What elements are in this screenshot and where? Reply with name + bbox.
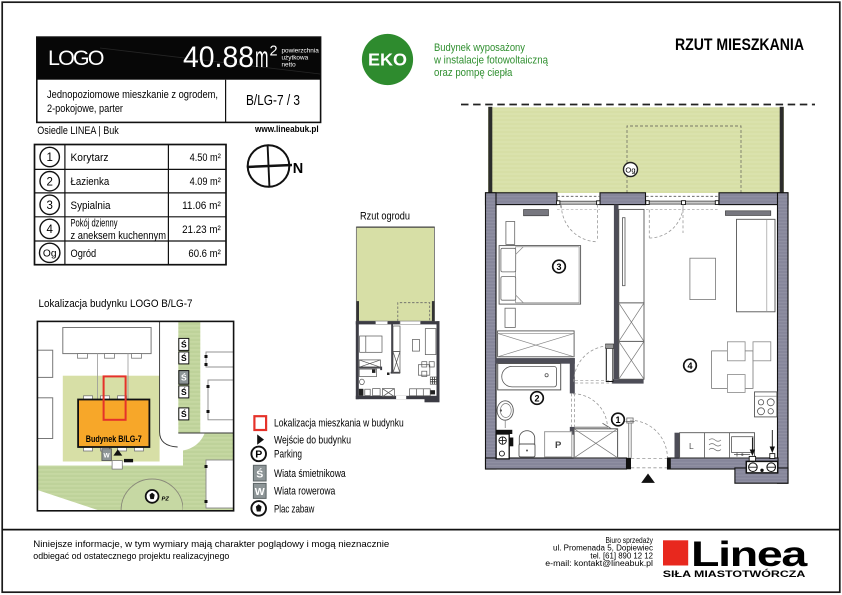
svg-text:11.06 m²: 11.06 m² [182,200,221,212]
svg-text:Lokalizacja budynku LOGO B/LG: Lokalizacja budynku LOGO B/LG-7 [39,298,193,310]
svg-text:powierzchnia: powierzchnia [282,48,320,55]
svg-text:Ś: Ś [181,352,187,363]
svg-text:Ogród: Ogród [71,248,97,260]
svg-text:40.88m2: 40.88m2 [183,41,278,74]
svg-text:Budynek B/LG-7: Budynek B/LG-7 [86,434,142,444]
svg-text:Plac zabaw: Plac zabaw [274,503,314,515]
svg-text:Budynek wyposażony: Budynek wyposażony [434,42,525,54]
svg-text:21.23 m²: 21.23 m² [182,224,221,236]
svg-text:z aneksem kuchennym: z aneksem kuchennym [71,230,167,242]
svg-text:2-pokojowe, parter: 2-pokojowe, parter [47,103,123,115]
svg-text:www.lineabuk.pl: www.lineabuk.pl [254,124,319,135]
svg-text:Niniejsze informacje, w tym wy: Niniejsze informacje, w tym wymiary mają… [33,538,389,549]
svg-text:60.6 m²: 60.6 m² [188,248,221,260]
svg-text:Lokalizacja mieszkania w budyn: Lokalizacja mieszkania w budynku [274,418,404,430]
svg-text:Og: Og [43,249,57,260]
svg-text:Ś: Ś [181,408,187,419]
svg-text:Ś: Ś [181,372,187,383]
svg-text:oraz pompę ciepła: oraz pompę ciepła [434,67,513,79]
svg-text:Ś: Ś [181,339,187,350]
svg-text:3: 3 [46,200,52,212]
svg-text:w instalacje fotowoltaiczną: w instalacje fotowoltaiczną [433,55,549,67]
svg-text:Sypialnia: Sypialnia [71,200,112,212]
svg-text:LOGO: LOGO [48,46,105,70]
svg-text:1: 1 [46,152,52,164]
svg-text:Parking: Parking [274,449,302,461]
svg-text:Ś: Ś [181,386,187,397]
svg-text:4: 4 [687,361,692,371]
svg-text:RZUT MIESZKANIA: RZUT MIESZKANIA [675,35,804,54]
svg-text:e-mail: kontakt@lineabuk.pl: e-mail: kontakt@lineabuk.pl [545,559,653,568]
svg-text:Wiata rowerowa: Wiata rowerowa [274,485,336,497]
svg-text:4.50 m²: 4.50 m² [190,152,221,164]
svg-text:odbiegać od ostatecznego proje: odbiegać od ostatecznego projektu realiz… [33,550,229,561]
svg-text:netto: netto [282,62,297,69]
svg-text:2: 2 [534,394,539,404]
svg-text:Łazienka: Łazienka [71,176,110,188]
svg-text:4.09 m²: 4.09 m² [190,176,221,188]
svg-text:Wiata śmietnikowa: Wiata śmietnikowa [274,468,346,480]
svg-text:Wejście do budynku: Wejście do budynku [274,434,351,446]
svg-text:Pokój dzienny: Pokój dzienny [71,217,118,229]
svg-text:1: 1 [615,415,620,425]
svg-text:Jednopoziomowe mieszkanie z og: Jednopoziomowe mieszkanie z ogrodem, [47,89,218,101]
svg-text:P: P [255,449,262,461]
svg-text:3: 3 [556,262,561,272]
svg-text:N: N [293,161,303,177]
svg-text:P: P [555,440,562,451]
svg-text:SIŁA MIASTOTWÓRCZA: SIŁA MIASTOTWÓRCZA [663,568,806,579]
svg-text:Osiedle LINEA | Buk: Osiedle LINEA | Buk [37,125,119,137]
svg-text:W: W [104,453,111,460]
svg-text:Korytarz: Korytarz [71,152,109,164]
svg-text:L: L [689,441,694,451]
svg-text:B/LG-7 / 3: B/LG-7 / 3 [246,93,300,109]
svg-text:2: 2 [46,176,52,188]
svg-text:Ś: Ś [256,468,263,481]
svg-text:PZ: PZ [162,496,170,502]
svg-text:4: 4 [46,224,53,236]
svg-text:EKO: EKO [368,50,407,70]
svg-text:Og: Og [625,165,635,174]
svg-text:Rzut ogrodu: Rzut ogrodu [360,211,410,223]
svg-text:użytkowa: użytkowa [282,55,309,62]
svg-text:W: W [255,486,265,498]
